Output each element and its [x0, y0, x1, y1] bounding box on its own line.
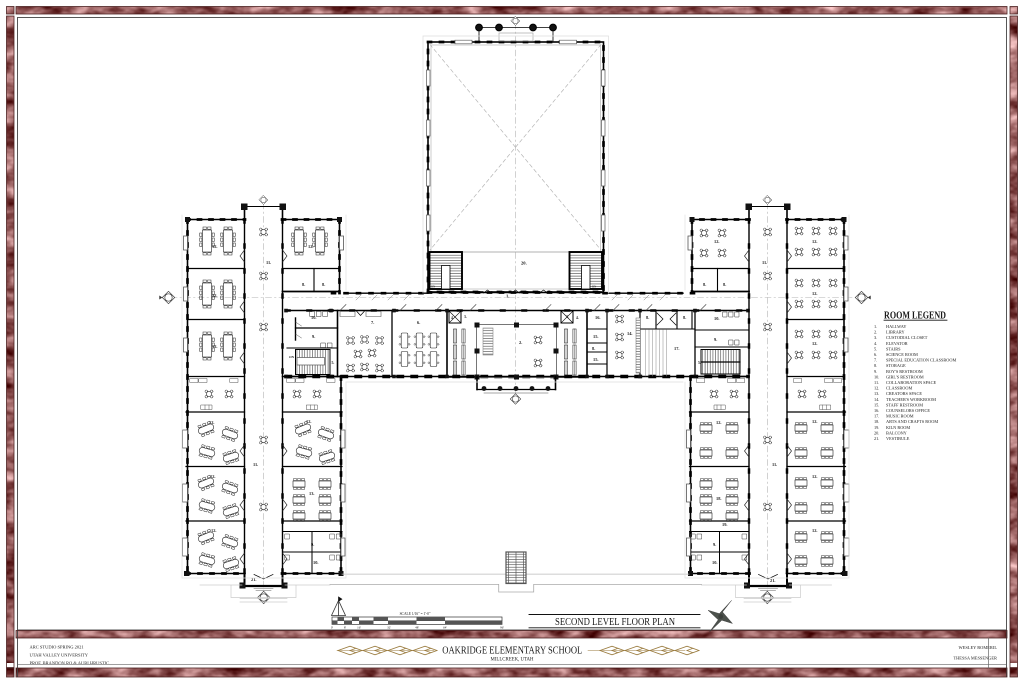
svg-text:MILLCREEK, UTAH: MILLCREEK, UTAH	[491, 658, 535, 663]
svg-text:2.: 2.	[519, 340, 522, 345]
svg-text:8.: 8.	[723, 282, 726, 287]
svg-text:15.: 15.	[874, 402, 879, 407]
svg-text:96': 96'	[500, 626, 504, 630]
svg-text:9.: 9.	[311, 542, 314, 547]
svg-text:21.: 21.	[770, 578, 776, 583]
svg-text:SCALE 1/16" = 1'-0": SCALE 1/16" = 1'-0"	[400, 612, 431, 616]
svg-text:ELEVATOR: ELEVATOR	[886, 341, 908, 346]
svg-text:CREATORS SPACE: CREATORS SPACE	[886, 391, 922, 396]
svg-text:10.: 10.	[874, 374, 879, 379]
svg-text:48': 48'	[415, 626, 419, 630]
svg-text:16.: 16.	[874, 408, 879, 413]
svg-text:12.: 12.	[812, 419, 818, 424]
svg-text:12.: 12.	[874, 386, 879, 391]
svg-text:ARC STUDIO SPRING 2021: ARC STUDIO SPRING 2021	[30, 644, 84, 649]
svg-text:3.: 3.	[566, 315, 569, 319]
svg-text:BOY'S RESTROOM: BOY'S RESTROOM	[886, 369, 923, 374]
svg-text:8.: 8.	[322, 282, 325, 287]
svg-text:19.: 19.	[722, 522, 728, 527]
svg-text:12.: 12.	[716, 420, 722, 425]
svg-text:10.: 10.	[714, 316, 720, 321]
svg-text:12.: 12.	[812, 474, 818, 479]
svg-text:THESSA MESSENGER: THESSA MESSENGER	[953, 656, 997, 661]
svg-text:9.: 9.	[874, 369, 877, 374]
svg-text:21.: 21.	[874, 436, 879, 441]
svg-text:19.: 19.	[874, 425, 879, 430]
svg-text:20.: 20.	[521, 261, 527, 266]
svg-text:UTAH VALLEY UNIVERSITY: UTAH VALLEY UNIVERSITY	[30, 652, 89, 657]
svg-text:COUNSELORS OFFICE: COUNSELORS OFFICE	[886, 408, 930, 413]
svg-text:9.: 9.	[312, 334, 315, 339]
svg-text:2.: 2.	[874, 330, 877, 335]
svg-text:12.: 12.	[714, 239, 720, 244]
svg-text:14.: 14.	[627, 331, 633, 336]
svg-text:7.: 7.	[874, 358, 877, 363]
svg-text:SECOND LEVEL FLOOR PLAN: SECOND LEVEL FLOOR PLAN	[555, 616, 675, 628]
svg-text:VESTIBULE: VESTIBULE	[886, 436, 910, 441]
svg-text:20.: 20.	[874, 430, 879, 435]
svg-text:5.: 5.	[698, 361, 701, 365]
svg-text:HALLWAY: HALLWAY	[886, 324, 907, 329]
svg-text:WESLEY ROMERIL: WESLEY ROMERIL	[959, 645, 998, 650]
svg-text:SPECIAL EDUCATION CLASSROOM: SPECIAL EDUCATION CLASSROOM	[886, 358, 956, 363]
svg-text:12.: 12.	[812, 528, 818, 533]
svg-text:11.: 11.	[266, 260, 271, 265]
svg-text:17.: 17.	[874, 414, 879, 419]
svg-text:3.: 3.	[874, 335, 877, 340]
svg-text:6.: 6.	[417, 320, 420, 325]
svg-text:10.: 10.	[712, 560, 718, 565]
svg-text:12.: 12.	[308, 244, 314, 249]
svg-text:8.: 8.	[683, 315, 686, 320]
svg-text:8.: 8.	[592, 346, 595, 351]
svg-text:STORAGE: STORAGE	[886, 363, 906, 368]
svg-text:8.: 8.	[646, 315, 649, 320]
svg-text:LIBRARY: LIBRARY	[886, 330, 905, 335]
svg-text:ARTS AND CRAFTS ROOM: ARTS AND CRAFTS ROOM	[886, 419, 938, 424]
svg-text:PROF. BRANDON RO & AURI HRUSTI: PROF. BRANDON RO & AURI HRUSTIC	[30, 660, 110, 665]
svg-text:64': 64'	[443, 626, 447, 630]
svg-text:4.: 4.	[451, 316, 454, 320]
svg-text:14.: 14.	[874, 397, 879, 402]
svg-text:9.: 9.	[714, 337, 717, 342]
svg-text:18.: 18.	[874, 419, 879, 424]
svg-text:15.: 15.	[593, 357, 599, 362]
svg-text:12.: 12.	[212, 244, 218, 249]
svg-text:1.: 1.	[506, 294, 509, 299]
svg-text:13.: 13.	[309, 491, 315, 496]
svg-text:CUSTODIAL CLOSET: CUSTODIAL CLOSET	[886, 335, 928, 340]
svg-text:8.: 8.	[703, 282, 706, 287]
svg-text:11.: 11.	[253, 462, 258, 467]
svg-text:KILN ROOM: KILN ROOM	[886, 425, 910, 430]
svg-text:STAFF RESTROOM: STAFF RESTROOM	[886, 402, 923, 407]
svg-text:16': 16'	[357, 626, 361, 630]
svg-text:5.: 5.	[874, 346, 877, 351]
svg-text:13.: 13.	[874, 391, 879, 396]
svg-text:GIRL'S RESTROOM: GIRL'S RESTROOM	[886, 374, 924, 379]
svg-text:10.: 10.	[311, 315, 317, 320]
svg-text:BALCONY: BALCONY	[886, 430, 907, 435]
svg-text:COLLABORATION SPACE: COLLABORATION SPACE	[886, 380, 936, 385]
svg-text:8.: 8.	[302, 282, 305, 287]
svg-text:4.: 4.	[576, 316, 579, 320]
svg-text:CLASSROOM: CLASSROOM	[886, 386, 912, 391]
svg-text:7.: 7.	[371, 320, 374, 325]
svg-text:12.: 12.	[210, 474, 216, 479]
svg-text:4.: 4.	[874, 341, 877, 346]
svg-text:10.: 10.	[313, 560, 319, 565]
svg-text:6.: 6.	[874, 352, 877, 357]
svg-text:STAIRS: STAIRS	[886, 346, 901, 351]
svg-text:16.: 16.	[595, 315, 601, 320]
svg-text:12.: 12.	[812, 291, 818, 296]
svg-text:18.: 18.	[716, 496, 722, 501]
svg-text:8.: 8.	[874, 363, 877, 368]
svg-text:9.: 9.	[713, 542, 716, 547]
svg-text:12.: 12.	[212, 293, 218, 298]
svg-text:12.: 12.	[812, 341, 818, 346]
svg-text:SCIENCE ROOM: SCIENCE ROOM	[886, 352, 918, 357]
svg-text:32': 32'	[387, 626, 391, 630]
svg-text:3.: 3.	[464, 315, 467, 319]
svg-text:12.: 12.	[212, 344, 218, 349]
svg-text:11.: 11.	[772, 462, 777, 467]
svg-text:17.: 17.	[674, 346, 680, 351]
svg-text:11.: 11.	[874, 380, 879, 385]
svg-text:12.: 12.	[209, 420, 215, 425]
svg-text:12.: 12.	[211, 528, 217, 533]
svg-text:12.: 12.	[812, 239, 818, 244]
svg-text:1.: 1.	[874, 324, 877, 329]
svg-text:12.: 12.	[306, 419, 312, 424]
svg-text:ON: ON	[289, 355, 295, 359]
svg-text:OAKRIDGE ELEMENTARY SCHOOL: OAKRIDGE ELEMENTARY SCHOOL	[442, 646, 582, 657]
svg-text:11.: 11.	[762, 260, 767, 265]
svg-text:15.: 15.	[593, 334, 599, 339]
svg-text:MUSIC ROOM: MUSIC ROOM	[886, 414, 914, 419]
svg-text:5.: 5.	[332, 361, 335, 365]
svg-text:TEACHER'S WORKROOM: TEACHER'S WORKROOM	[886, 397, 936, 402]
